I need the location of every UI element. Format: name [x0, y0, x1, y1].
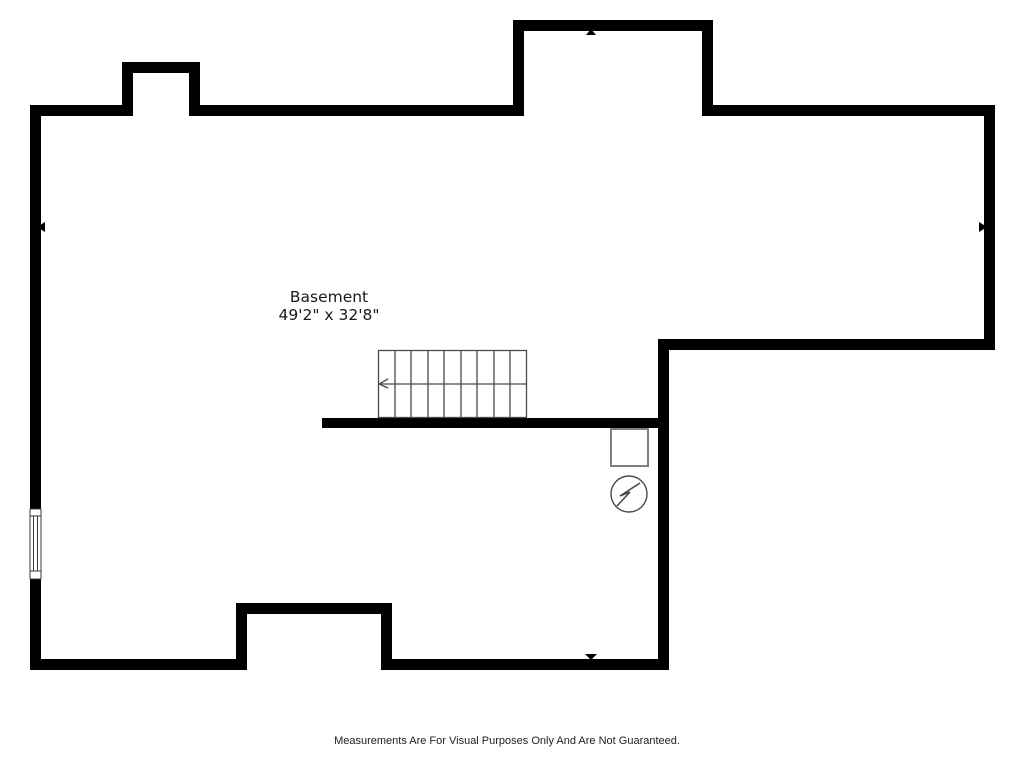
- wall-bottom-right: [381, 659, 669, 670]
- window-frame: [30, 509, 41, 579]
- wall-top-right: [702, 105, 995, 116]
- wall-bump1-top: [122, 62, 200, 73]
- wall-bump2-right: [702, 20, 713, 116]
- floor-plan-drawing: [0, 0, 1024, 768]
- electrical-circle-bolt-icon: [611, 476, 647, 512]
- wall-left-lower: [30, 578, 41, 670]
- furnace-square-icon: [611, 429, 648, 466]
- wall-bump2-left: [513, 20, 524, 116]
- wall-top-middle: [189, 105, 523, 116]
- room-label-block: Basement 49'2" x 32'8": [209, 288, 449, 324]
- wall-bump3-top: [236, 603, 392, 614]
- wall-mid-vertical: [658, 339, 669, 670]
- wall-step: [658, 339, 995, 350]
- disclaimer-text: Measurements Are For Visual Purposes Onl…: [0, 735, 1014, 747]
- wall-bottom-left: [30, 659, 247, 670]
- wall-interior-stair: [322, 418, 668, 428]
- exterior-walls: [30, 20, 995, 670]
- floor-plan-canvas: Basement 49'2" x 32'8" Measurements Are …: [0, 0, 1024, 768]
- staircase: [379, 351, 527, 418]
- room-name: Basement: [209, 288, 449, 306]
- wall-bump2-top: [513, 20, 713, 31]
- wall-left-upper: [30, 105, 41, 510]
- window-symbol: [30, 509, 41, 579]
- wall-top-left: [30, 105, 132, 116]
- room-dimensions: 49'2" x 32'8": [209, 306, 449, 324]
